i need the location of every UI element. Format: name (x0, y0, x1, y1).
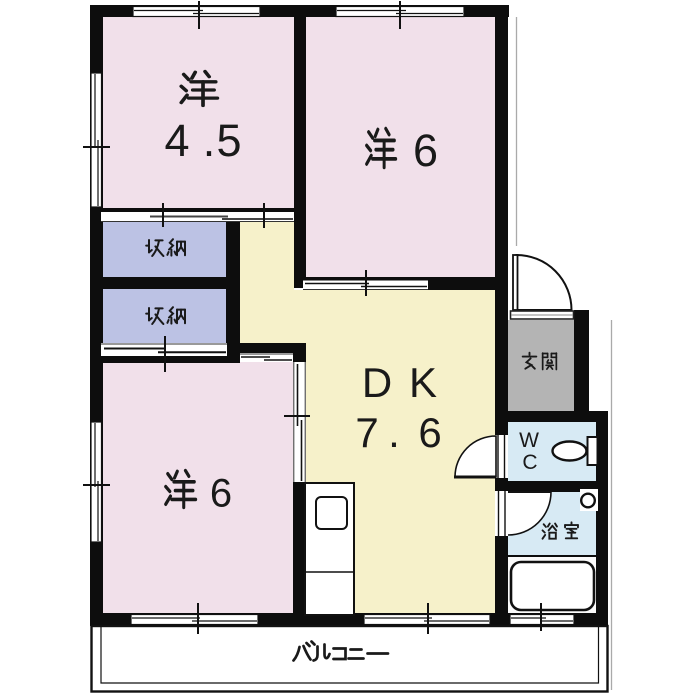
svg-text:C: C (522, 451, 537, 474)
svg-text:6: 6 (210, 472, 232, 516)
svg-text:D: D (362, 359, 392, 406)
svg-text:.: . (203, 115, 216, 166)
svg-text:5: 5 (216, 115, 241, 166)
svg-text:6: 6 (413, 125, 438, 176)
svg-text:7: 7 (355, 409, 378, 456)
svg-text:K: K (409, 359, 437, 406)
svg-text:.: . (388, 409, 400, 456)
svg-text:W: W (519, 429, 539, 452)
svg-text:4: 4 (164, 115, 189, 166)
svg-text:6: 6 (418, 409, 441, 456)
